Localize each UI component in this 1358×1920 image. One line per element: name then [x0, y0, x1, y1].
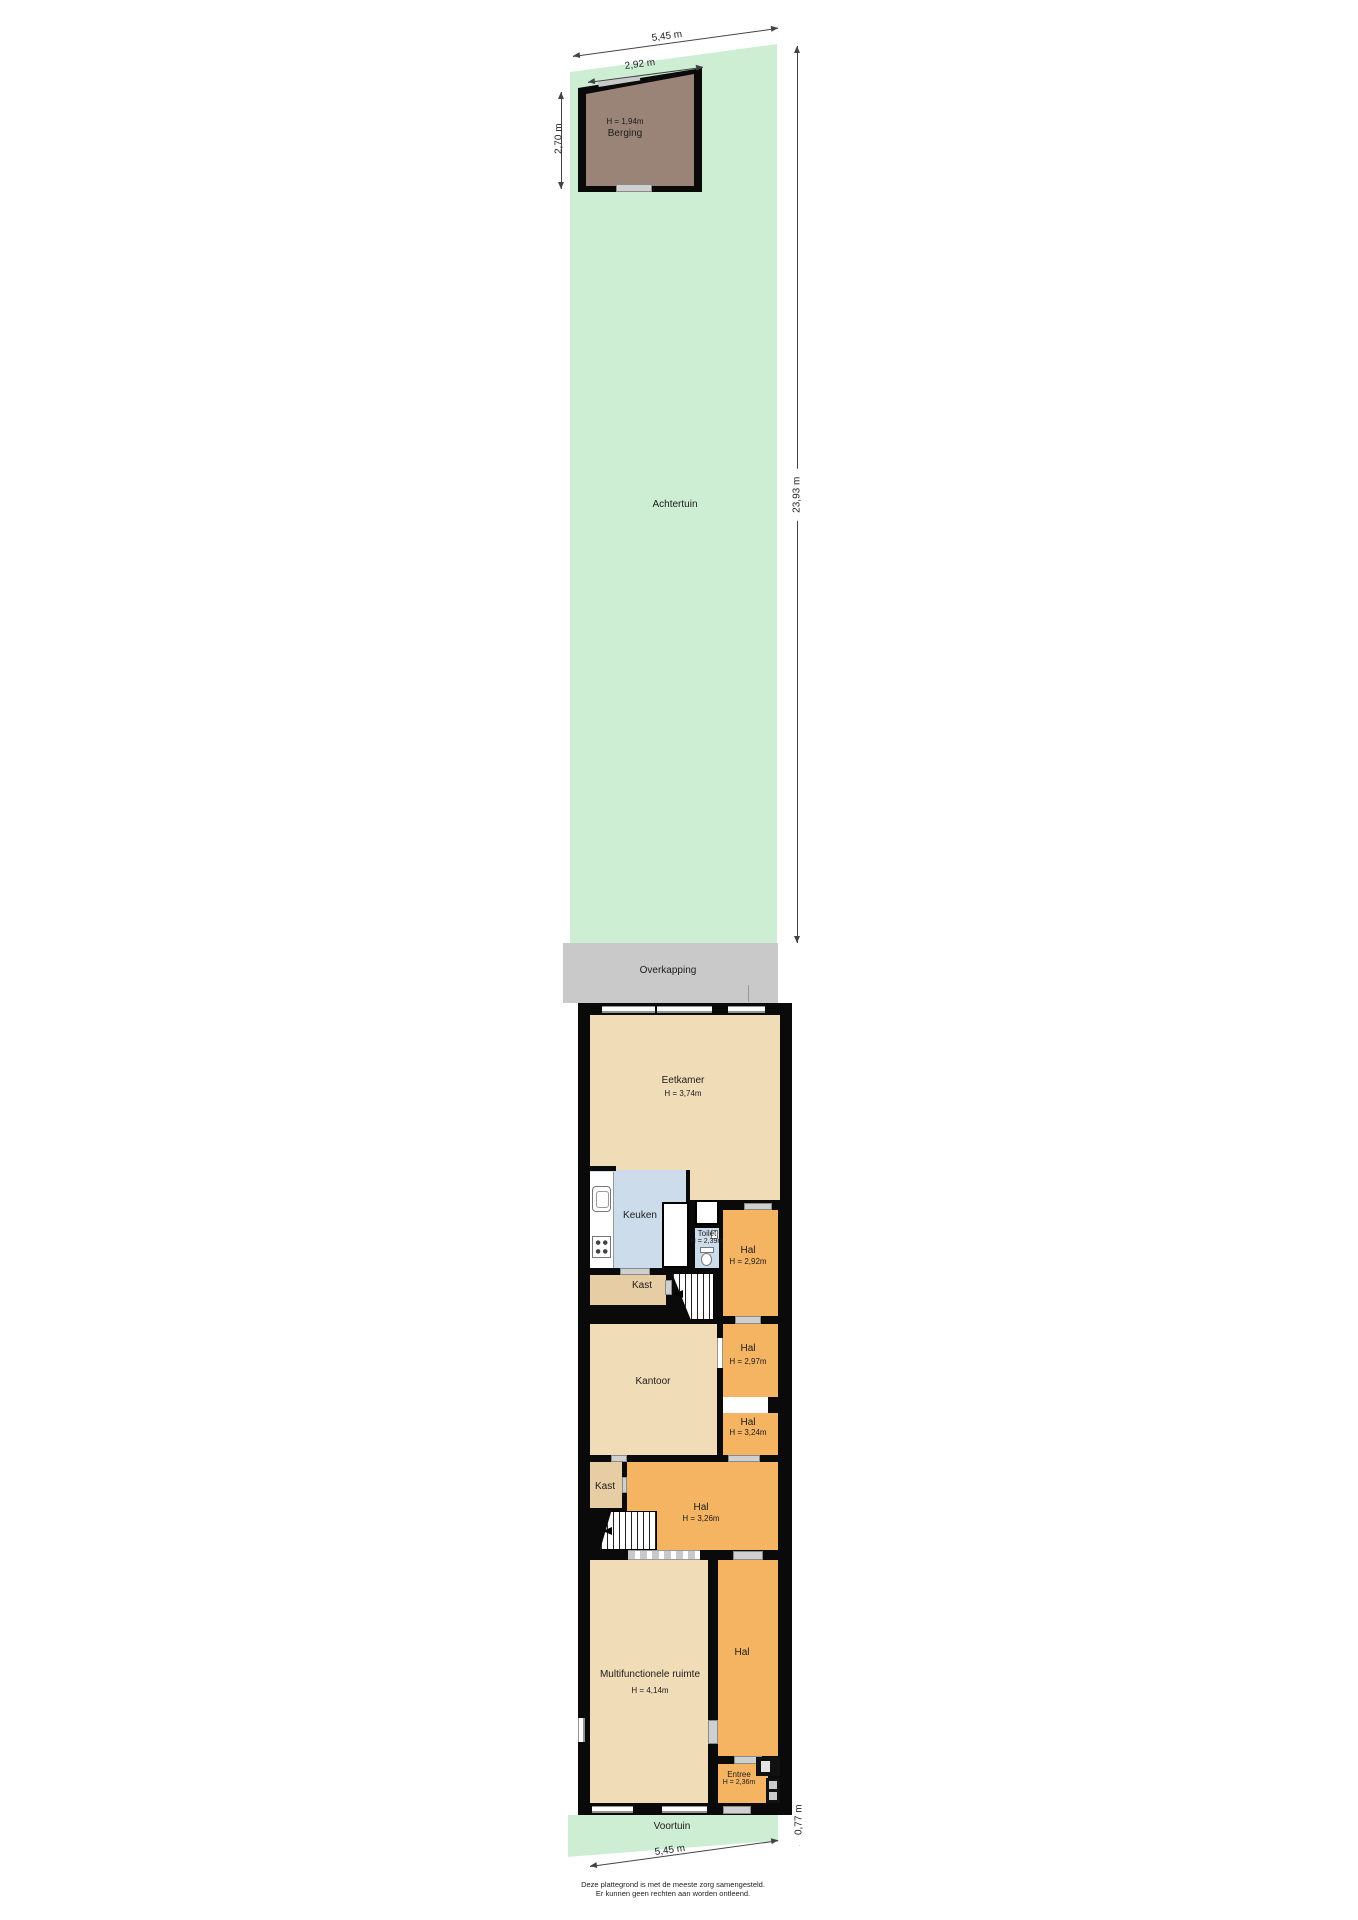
hal-mid2-label: Hal [718, 1417, 778, 1429]
hal-mid1-height-label: H = 2,97m [718, 1357, 778, 1366]
hal-mid2-height-label: H = 3,24m [718, 1428, 778, 1437]
kitchen-sink-basin [596, 1191, 609, 1208]
stairs-direction-arrow-upper [674, 1290, 683, 1298]
meter-cupboard-box-2 [766, 1778, 780, 1803]
front-entrance-door [723, 1806, 751, 1814]
eetkamer-height-label: H = 3,74m [623, 1089, 743, 1098]
kantoor-room [590, 1324, 717, 1455]
kast-hall-label: Kast [575, 1481, 635, 1493]
kitchen-hob [592, 1236, 611, 1258]
meter-unit-2 [769, 1781, 777, 1789]
dim-label-berging-depth: 2,70 m [553, 114, 565, 164]
meter-unit-3 [769, 1792, 777, 1800]
kantoor-kast-door [611, 1455, 627, 1462]
rear-facade-window-3 [728, 1006, 765, 1013]
wc-bowl [701, 1253, 712, 1266]
hal-multi-opening [628, 1550, 700, 1560]
hal-rear-label: Hal [718, 1245, 778, 1257]
rear-facade-window-2 [657, 1006, 712, 1013]
hal-rear-mid-door [735, 1316, 761, 1324]
multifunctionele-height-label: H = 4,14m [570, 1686, 730, 1695]
hal-stairs-hal-front-door [733, 1551, 763, 1560]
eetkamer-label: Eetkamer [623, 1075, 743, 1087]
eetkamer-room-extension [690, 1170, 780, 1200]
meter-cupboard-box-1 [756, 1757, 780, 1776]
hal-mid1-label: Hal [718, 1343, 778, 1355]
hal-mid2-hal-stairs-door [728, 1455, 760, 1462]
footer-disclaimer-line2: Er kunnen geen rechten aan worden ontlee… [553, 1890, 793, 1899]
floorplan-canvas: Achtertuin H = 1,94m Berging Overkapping… [0, 0, 1358, 1920]
voortuin-label: Voortuin [612, 1821, 732, 1833]
rear-facade-window-1 [602, 1006, 655, 1013]
hal-front-label: Hal [712, 1647, 772, 1659]
meter-unit-1 [761, 1761, 770, 1772]
entree-height-label: H = 2,36m [709, 1779, 769, 1787]
multifunctionele-side-window [578, 1718, 585, 1742]
achtertuin-label: Achtertuin [615, 499, 735, 511]
hal-stairs-label: Hal [671, 1502, 731, 1514]
kitchen-sink [592, 1186, 611, 1212]
eetkamer-hal-door [744, 1203, 772, 1210]
kantoor-label: Kantoor [593, 1376, 713, 1388]
overkapping-post-line [748, 985, 749, 1002]
dim-label-voortuin-depth: 0,77 m [793, 1794, 805, 1846]
multifunctionele-room [590, 1560, 708, 1803]
keuken-kast-door [620, 1268, 650, 1275]
berging-door [616, 184, 652, 192]
stairs-direction-arrow-lower [603, 1527, 612, 1535]
front-facade-window-1 [592, 1806, 633, 1813]
eetkamer-keuken-wall-stub [590, 1166, 616, 1171]
multi-hal-front-door [708, 1720, 718, 1744]
hal-stairs-height-label: H = 3,26m [671, 1514, 731, 1523]
berging-label: Berging [585, 128, 665, 140]
overkapping-label: Overkapping [608, 965, 728, 977]
berging-height-label: H = 1,94m [585, 117, 665, 126]
dim-label-achtertuin-depth: 23,93 m [791, 469, 803, 521]
hal-rear-height-label: H = 2,92m [718, 1257, 778, 1266]
hal-niche [723, 1397, 768, 1413]
hall-cupboard [695, 1200, 719, 1225]
front-facade-window-2 [662, 1806, 707, 1813]
multifunctionele-label: Multifunctionele ruimte [570, 1669, 730, 1681]
